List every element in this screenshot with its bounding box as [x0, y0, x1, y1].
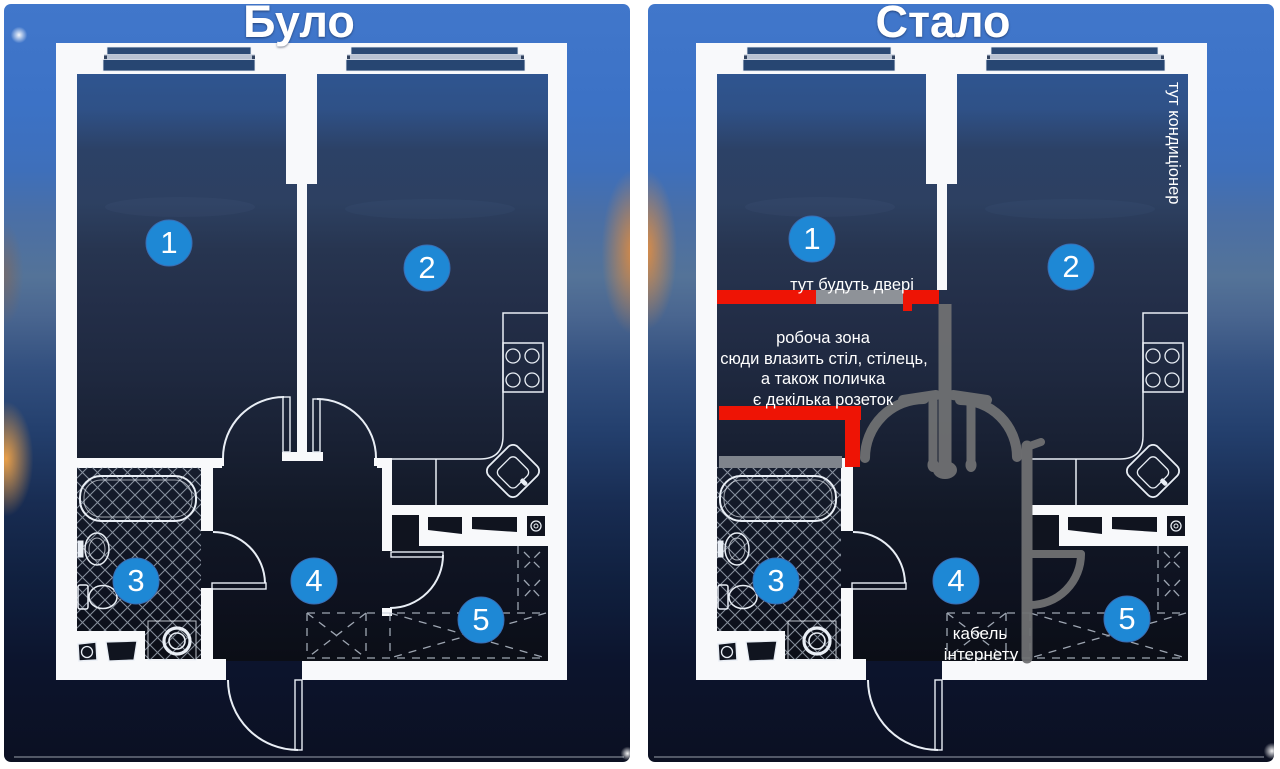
- svg-text:2: 2: [1062, 249, 1079, 284]
- svg-text:5: 5: [1118, 601, 1135, 636]
- svg-text:кабель: кабель: [953, 624, 1008, 643]
- svg-text:3: 3: [127, 563, 144, 598]
- svg-text:5: 5: [472, 602, 489, 637]
- svg-text:інтернету: інтернету: [944, 645, 1019, 664]
- svg-text:а також поличка: а також поличка: [761, 370, 886, 388]
- svg-text:4: 4: [947, 563, 964, 598]
- svg-text:3: 3: [767, 563, 784, 598]
- svg-text:4: 4: [305, 563, 322, 598]
- svg-text:1: 1: [803, 221, 820, 256]
- svg-text:тут будуть двері: тут будуть двері: [790, 276, 914, 294]
- svg-text:робоча зона: робоча зона: [776, 329, 871, 347]
- svg-text:1: 1: [160, 225, 177, 260]
- svg-text:сюди влазить стіл, стілець,: сюди влазить стіл, стілець,: [720, 350, 927, 368]
- svg-text:є декілька розеток: є декілька розеток: [753, 391, 894, 409]
- svg-text:2: 2: [418, 250, 435, 285]
- svg-text:тут кондиціонер: тут кондиціонер: [1165, 82, 1183, 204]
